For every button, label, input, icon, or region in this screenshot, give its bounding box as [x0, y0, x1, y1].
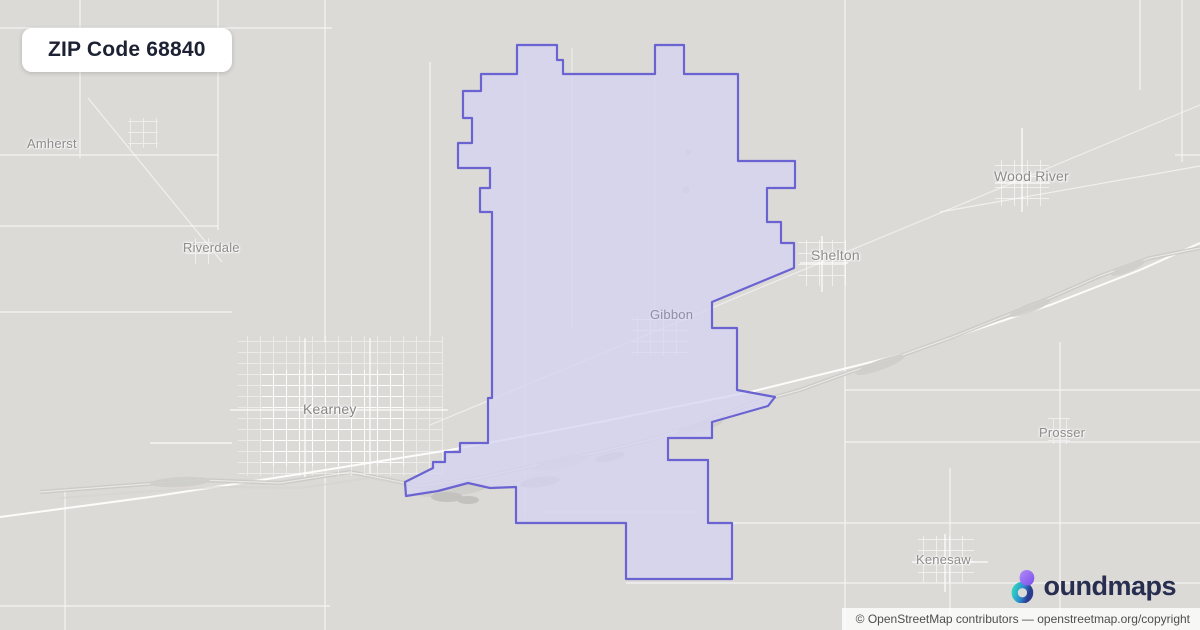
- map-label-riverdale: Riverdale: [183, 240, 240, 255]
- map-card: Amherst Riverdale Kearney Gibbon Shelton…: [0, 0, 1200, 630]
- map-label-gibbon: Gibbon: [650, 307, 693, 322]
- kearney-core-streets: [262, 370, 404, 466]
- osm-attribution: © OpenStreetMap contributors — openstree…: [842, 608, 1200, 630]
- boundmaps-logo: oundmaps: [1009, 569, 1176, 603]
- map-label-amherst: Amherst: [27, 136, 77, 151]
- zip-title-badge: ZIP Code 68840: [22, 28, 232, 72]
- boundmaps-b-pin-icon: [1009, 569, 1042, 603]
- map-label-wood-river: Wood River: [994, 168, 1069, 184]
- amherst-streets: [128, 118, 158, 148]
- boundmaps-wordmark: oundmaps: [1043, 571, 1176, 602]
- map-label-prosser: Prosser: [1039, 425, 1085, 440]
- map-label-kenesaw: Kenesaw: [916, 552, 971, 567]
- map-canvas: [0, 0, 1200, 630]
- map-label-shelton: Shelton: [811, 247, 860, 263]
- map-label-kearney: Kearney: [303, 401, 357, 417]
